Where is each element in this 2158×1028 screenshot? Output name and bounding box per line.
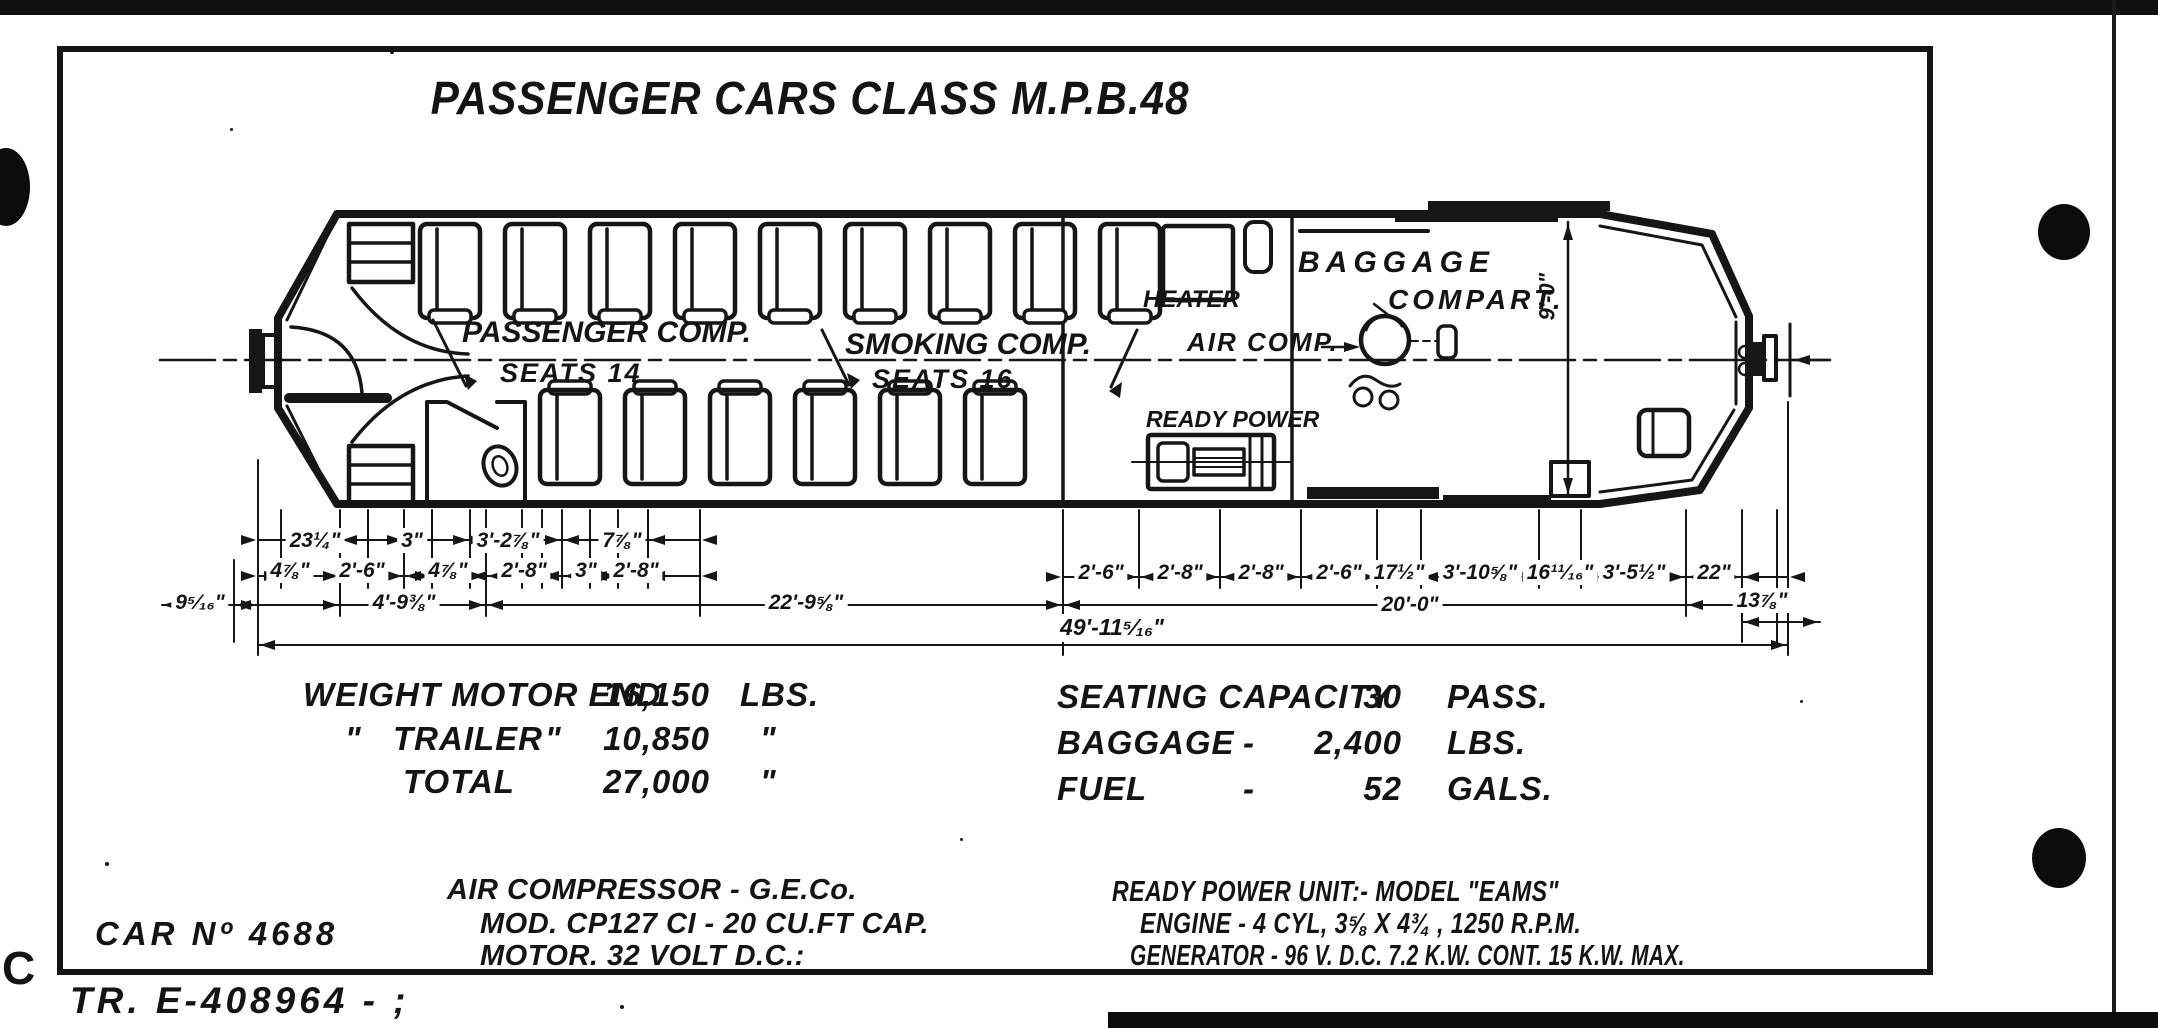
ditto-mark: " — [760, 763, 777, 801]
dim-label: 3'-2⅞" — [473, 528, 544, 553]
dim-label: 9⁵⁄₁₆" — [171, 590, 228, 615]
toilet-bowl — [478, 442, 522, 491]
dim-label: 17½" — [1370, 560, 1429, 585]
dim-label: 2'-6" — [335, 558, 388, 583]
nose-window — [1639, 410, 1689, 456]
seating-capacity-value: 30 — [1202, 678, 1402, 716]
air-compressor-device — [1350, 304, 1456, 409]
dim-label: 23¼" — [286, 528, 345, 553]
dim-label: 3" — [397, 528, 427, 553]
air-compressor-note-1: AIR COMPRESSOR - G.E.Co. — [447, 874, 857, 907]
air-comp-label: AIR COMP. — [1187, 328, 1339, 358]
dim-label: 20'-0" — [1378, 592, 1443, 617]
passenger-seats-label: SEATS 14 — [500, 358, 642, 389]
ready-power-label: READY POWER — [1146, 406, 1319, 432]
dim-label: 22" — [1693, 560, 1734, 585]
scan-speck — [620, 1005, 624, 1009]
weight-trailer-value: 10,850 — [500, 720, 710, 758]
scan-speck — [1800, 700, 1803, 703]
baggage-capacity-unit: LBS. — [1447, 724, 1526, 762]
ready-power-note-3: GENERATOR - 96 V. D.C. 7.2 K.W. CONT. 15… — [1130, 940, 1685, 973]
scan-speck — [1545, 205, 1548, 208]
dim-label: 7⅞" — [598, 528, 645, 553]
fuel-value: 52 — [1202, 770, 1402, 808]
ditto-mark: " — [760, 720, 777, 758]
dim-label: 16¹¹⁄₁₆" — [1523, 560, 1598, 585]
air-compressor-note-3: MOTOR. 32 VOLT D.C.: — [480, 940, 805, 973]
smoking-seats-label: SEATS 16 — [872, 364, 1014, 395]
toilet-room — [427, 402, 525, 502]
drawing-number: TR. E-408964 - ; — [70, 980, 410, 1023]
passenger-comp-label: PASSENGER COMP. — [462, 316, 751, 351]
car-width-dimension-label: 9'-0" — [1534, 262, 1559, 332]
ready-power-note-1: READY POWER UNIT:- MODEL "EAMS" — [1112, 876, 1559, 909]
margin-letter: C — [2, 942, 35, 995]
dimension-extension-lines — [234, 402, 1788, 655]
baggage-capacity-value: 2,400 — [1202, 724, 1402, 762]
dim-label: 4⅞" — [266, 558, 313, 583]
scan-speck — [960, 838, 963, 841]
door-arc-end — [291, 327, 362, 393]
dim-label: 2'-6" — [1312, 560, 1365, 585]
car-number: CAR Nº 4688 — [95, 915, 338, 953]
dim-label: 2'-8" — [1153, 560, 1206, 585]
dim-label: 4'-9⅜" — [369, 590, 440, 615]
ditto-mark: " — [345, 720, 362, 758]
seating-capacity-unit: PASS. — [1447, 678, 1549, 716]
fuel-label: FUEL — [1057, 770, 1147, 808]
air-compressor-note-2: MOD. CP127 CI - 20 CU.FT CAP. — [480, 908, 929, 941]
dim-label: 4⅞" — [424, 558, 471, 583]
dim-label: 3'-10⅝" — [1439, 560, 1522, 585]
fuel-unit: GALS. — [1447, 770, 1553, 808]
scan-speck — [105, 862, 109, 866]
smoking-comp-label: SMOKING COMP. — [845, 328, 1091, 363]
ready-power-note-2: ENGINE - 4 CYL, 3⅝ X 4¾ , 1250 R.P.M. — [1140, 908, 1581, 941]
weight-motor-end-value: 16,150 — [500, 676, 710, 714]
overall-length-label: 49'-11⁵⁄₁₆" — [1056, 614, 1168, 642]
weight-total-label: TOTAL — [403, 763, 515, 801]
dim-label: 13⅞" — [1733, 588, 1792, 613]
scan-speck — [230, 128, 233, 131]
weight-total-value: 27,000 — [500, 763, 710, 801]
scan-speck — [390, 50, 394, 54]
blueprint-page: PASSENGER CARS CLASS M.P.B.48 — [0, 0, 2158, 1028]
seat-row-top — [420, 224, 1160, 323]
car-plan-drawing — [0, 0, 2158, 1028]
seat-row-bottom — [540, 381, 1025, 484]
baggage-label: BAGGAGE — [1298, 246, 1495, 281]
heater-label: HEATER — [1143, 286, 1240, 314]
ready-power-unit-device — [1132, 435, 1292, 489]
weight-unit: LBS. — [740, 676, 819, 714]
dim-label: 22'-9⅝" — [765, 590, 848, 615]
door-arc-bottom — [352, 376, 468, 442]
dim-label: 2'-6" — [1074, 560, 1127, 585]
dim-label: 3'-5½" — [1599, 560, 1670, 585]
dim-label: 3" — [571, 558, 601, 583]
dim-label: 2'-8" — [497, 558, 550, 583]
dim-label: 2'-8" — [609, 558, 662, 583]
dim-label: 2'-8" — [1234, 560, 1287, 585]
